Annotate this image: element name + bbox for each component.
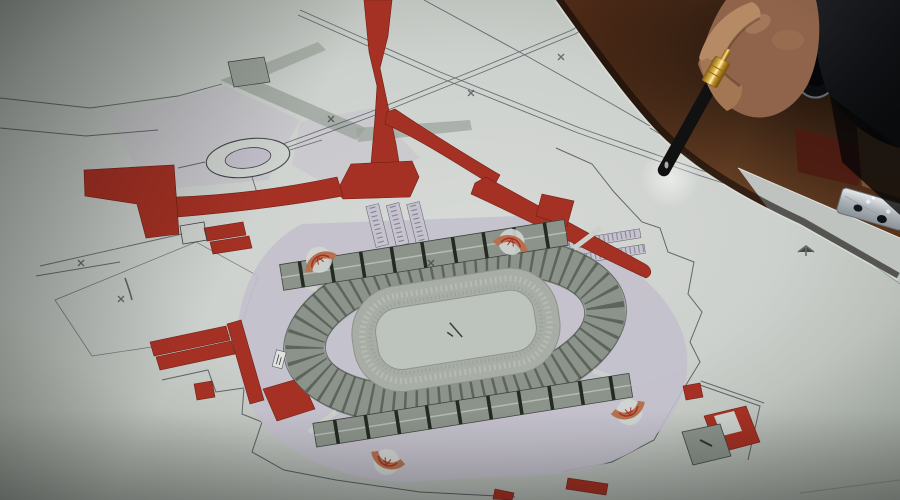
grey-building [228, 57, 270, 87]
red-plaza [337, 161, 419, 199]
pen-tip [665, 162, 669, 169]
scene-artwork [0, 0, 900, 500]
photo-of-site-plan [0, 0, 900, 500]
red-building [683, 383, 703, 400]
hand [664, 0, 819, 170]
